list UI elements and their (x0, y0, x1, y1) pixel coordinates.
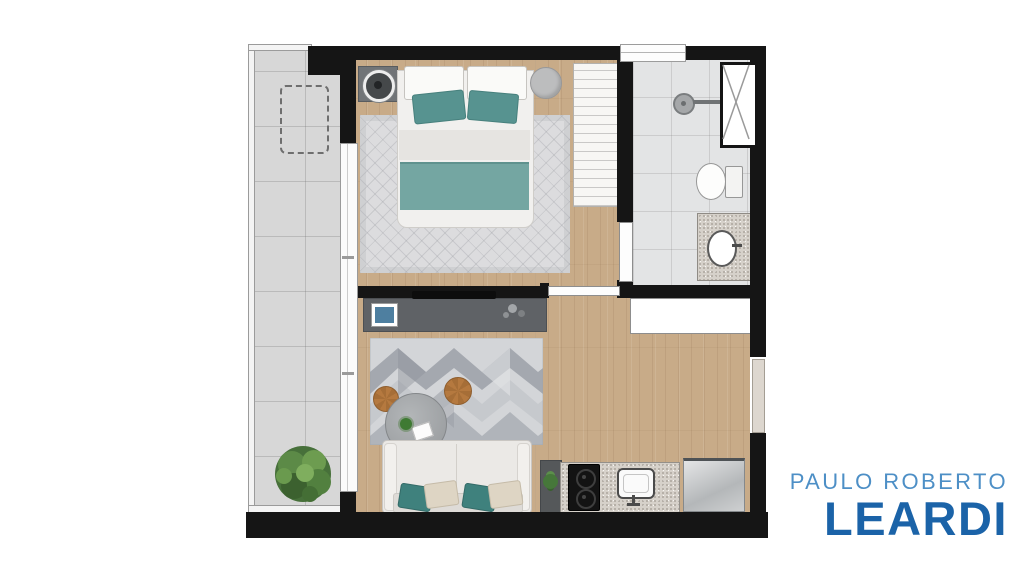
ventilation-window-icon (720, 62, 758, 148)
burner-icon (576, 489, 596, 509)
floor-plan (246, 42, 768, 540)
door-mullion (342, 372, 354, 375)
wardrobe (573, 63, 619, 207)
wooden-pouf-icon (444, 377, 472, 405)
kitchen-plant-icon (543, 474, 558, 489)
balcony-railing-top (248, 44, 312, 51)
bathroom-sink-icon (707, 230, 737, 267)
lamp-icon (363, 70, 395, 102)
bed-pillow-teal (467, 90, 519, 124)
brand-name-top: PAULO ROBERTO (708, 471, 1008, 493)
console-decor (518, 310, 525, 317)
shower-head-icon (673, 93, 695, 115)
toilet-tank (725, 166, 743, 198)
coffee-table-book (411, 421, 434, 441)
bed-pillow-teal (412, 89, 467, 124)
door-mullion (342, 256, 354, 259)
brand-logo: PAULO ROBERTO LEARDI (708, 471, 1008, 542)
hall-cabinet (630, 298, 751, 334)
tv-icon (412, 291, 496, 299)
bed-sheet-band (399, 130, 530, 160)
balcony-railing-left (248, 44, 255, 514)
console-decor (508, 304, 517, 313)
entrance-door-icon (752, 359, 765, 433)
balcony-dashed-utility-area (280, 85, 329, 154)
wall-balcony-bottom (340, 490, 356, 514)
picture-frame-icon (371, 303, 398, 327)
sofa (382, 440, 532, 514)
kitchen-faucet-handle (627, 503, 640, 506)
sofa-pillow-beige (487, 480, 523, 509)
bedroom-door-icon (548, 286, 620, 296)
window-icon (620, 44, 686, 62)
wall-balcony-top (340, 46, 356, 143)
cooktop-icon (568, 464, 600, 511)
balcony-sliding-door (340, 143, 358, 492)
shower-arm (693, 100, 720, 104)
bathroom-faucet-icon (732, 244, 742, 247)
wall-below-bathroom (619, 285, 750, 298)
bathroom-door-icon (619, 222, 633, 282)
brand-name-main: LEARDI (708, 495, 1008, 542)
wall-corridor-bathroom (617, 56, 633, 222)
sofa-pillow-beige (423, 480, 459, 509)
balcony-plant-icon (270, 438, 336, 510)
bed-teal-blanket (400, 162, 529, 210)
coffee-table-plant-icon (400, 418, 412, 430)
bathroom-sink-counter (697, 213, 752, 281)
double-bed (397, 66, 532, 226)
burner-icon (576, 469, 596, 489)
kitchen-sink-icon (617, 468, 655, 499)
console-decor (503, 312, 509, 318)
page: PAULO ROBERTO LEARDI (0, 0, 1024, 576)
toilet-icon (696, 163, 726, 200)
wall-bottom (246, 512, 768, 538)
round-side-table (530, 67, 562, 99)
